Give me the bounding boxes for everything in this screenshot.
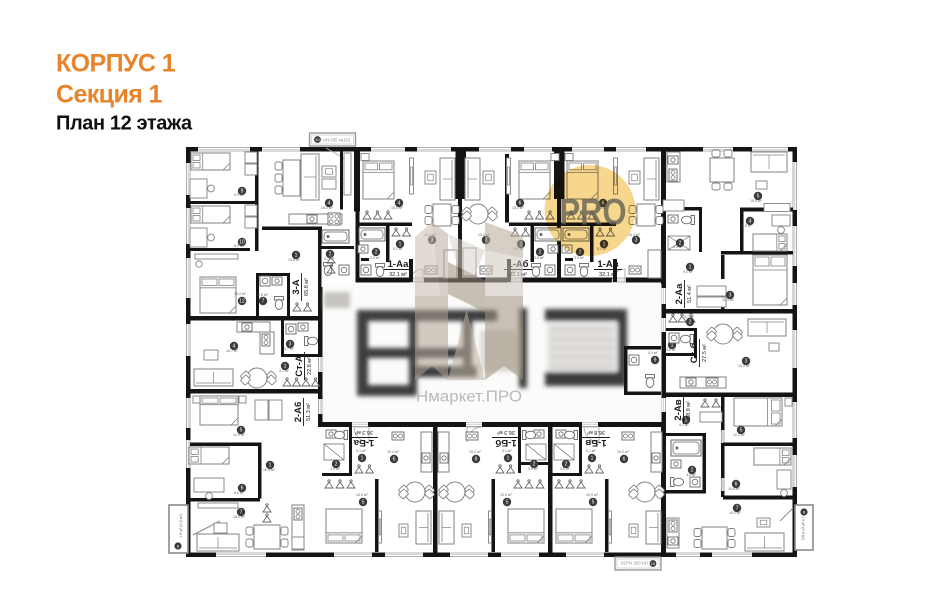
svg-text:2-Ав: 2-Ав [673, 399, 684, 420]
svg-text:19.0 м²: 19.0 м² [750, 199, 762, 203]
svg-text:32.1 м²: 32.1 м² [599, 272, 617, 278]
svg-text:3.9 м²: 3.9 м² [528, 467, 538, 471]
svg-text:Нмаркет.ПРО: Нмаркет.ПРО [416, 389, 522, 406]
svg-text:5.1 м²: 5.1 м² [356, 449, 366, 453]
svg-text:4.1 м²: 4.1 м² [648, 351, 658, 355]
svg-text:6: 6 [475, 457, 478, 463]
svg-text:1.5 м² (0.5 м²): 1.5 м² (0.5 м²) [179, 513, 183, 538]
svg-text:9.2 м²: 9.2 м² [683, 270, 693, 274]
svg-text:Секция 1: Секция 1 [56, 81, 163, 109]
svg-text:1: 1 [591, 456, 594, 462]
svg-text:КОРПУС 1: КОРПУС 1 [56, 50, 176, 78]
svg-text:36.8 м²: 36.8 м² [587, 429, 605, 435]
svg-text:36.3 м²: 36.3 м² [497, 429, 515, 435]
svg-text:12: 12 [239, 299, 245, 305]
svg-text:15.2 м²: 15.2 м² [234, 292, 246, 296]
svg-text:2: 2 [539, 250, 542, 256]
svg-text:5: 5 [592, 500, 595, 506]
svg-text:8.9 м²: 8.9 м² [742, 224, 752, 228]
svg-text:51.3 м²: 51.3 м² [306, 403, 312, 421]
svg-text:4.3 м²: 4.3 м² [686, 473, 696, 477]
svg-text:58.9 м²: 58.9 м² [686, 401, 692, 419]
svg-text:1-Ав: 1-Ав [597, 259, 618, 270]
svg-text:10.4 м²: 10.4 м² [263, 468, 275, 472]
svg-text:2: 2 [375, 250, 378, 256]
svg-text:15.1 м²: 15.1 м² [722, 298, 734, 302]
svg-text:2-А6: 2-А6 [293, 402, 304, 423]
svg-text:10: 10 [315, 137, 320, 142]
svg-text:10.8 м²: 10.8 м² [728, 487, 740, 491]
svg-text:16.2 м²: 16.2 м² [321, 206, 333, 210]
svg-text:3.9 м²: 3.9 м² [574, 256, 584, 260]
svg-text:15.2 м²: 15.2 м² [628, 233, 640, 237]
svg-text:36.3 м²: 36.3 м² [355, 429, 373, 435]
svg-text:10.9 м²: 10.9 м² [586, 493, 598, 497]
svg-text:9.2 м²: 9.2 м² [679, 423, 689, 427]
svg-text:10.9 м²: 10.9 м² [356, 493, 368, 497]
svg-text:51.4 м²: 51.4 м² [687, 285, 693, 303]
svg-text:19.2 м²: 19.2 м² [617, 450, 629, 454]
svg-text:План 12 этажа: План 12 этажа [56, 113, 193, 135]
svg-text:3.7 м²: 3.7 м² [684, 315, 694, 319]
svg-text:PRO: PRO [560, 192, 627, 233]
svg-text:65.8 м²: 65.8 м² [304, 278, 310, 296]
svg-text:3: 3 [635, 238, 638, 244]
svg-text:16.7 м²: 16.7 м² [226, 349, 238, 353]
svg-text:3.1 м²: 3.1 м² [279, 369, 289, 373]
svg-text:3-А: 3-А [291, 279, 302, 294]
svg-text:3.9 м²: 3.9 м² [560, 467, 570, 471]
svg-text:5: 5 [362, 500, 365, 506]
svg-text:9.9 м²: 9.9 м² [234, 193, 244, 197]
svg-text:6: 6 [623, 457, 626, 463]
svg-text:8.9 м²: 8.9 м² [234, 244, 244, 248]
svg-text:32.1 м²: 32.1 м² [389, 272, 407, 278]
svg-text:2.6 м²: 2.6 м² [258, 293, 268, 297]
svg-text:4.4 м²: 4.4 м² [673, 245, 683, 249]
svg-text:Ст-А: Ст-А [294, 355, 305, 377]
svg-text:1-Бв: 1-Бв [585, 437, 606, 448]
svg-text:10: 10 [651, 561, 656, 566]
svg-text:15.0 м²: 15.0 м² [512, 206, 524, 210]
svg-text:27.5 м²: 27.5 м² [702, 344, 708, 362]
svg-text:8.6 м²: 8.6 м² [234, 491, 244, 495]
svg-text:1: 1 [361, 456, 364, 462]
svg-text:5.1 м²: 5.1 м² [502, 449, 512, 453]
svg-text:7: 7 [262, 299, 265, 305]
svg-text:3.6 м²: 3.6 м² [534, 256, 544, 260]
svg-text:Ст-б: Ст-б [689, 343, 700, 364]
svg-text:22.8 м²: 22.8 м² [307, 357, 313, 375]
svg-text:15.0 м²: 15.0 м² [391, 206, 403, 210]
svg-text:14.9 м²: 14.9 м² [233, 433, 245, 437]
svg-text:18.1 м²: 18.1 м² [233, 515, 245, 519]
svg-text:1.5 м² (0.5 м²): 1.5 м² (0.5 м²) [801, 516, 805, 541]
svg-text:5.1 м²: 5.1 м² [586, 449, 596, 453]
svg-text:3.7 м²: 3.7 м² [284, 347, 294, 351]
svg-text:3.9 м²: 3.9 м² [370, 256, 380, 260]
svg-text:9: 9 [654, 358, 657, 364]
svg-text:2: 2 [689, 320, 692, 326]
svg-text:6: 6 [393, 457, 396, 463]
svg-text:12.2 м²: 12.2 м² [733, 433, 745, 437]
svg-text:UH-035 №153: UH-035 №153 [620, 561, 648, 566]
svg-text:19.2 м²: 19.2 м² [469, 450, 481, 454]
svg-text:5: 5 [506, 500, 509, 506]
svg-text:UH-035 №153: UH-035 №153 [323, 137, 351, 142]
svg-text:10.5 м²: 10.5 м² [288, 258, 300, 262]
svg-text:1-Бб: 1-Бб [495, 437, 516, 448]
svg-text:1-Ба: 1-Ба [353, 437, 374, 448]
svg-text:5.1 м²: 5.1 м² [393, 247, 403, 251]
svg-text:20.2 м²: 20.2 м² [738, 364, 750, 368]
svg-text:1: 1 [507, 456, 510, 462]
svg-text:2-Аа: 2-Аа [674, 283, 685, 304]
svg-text:19.2 м²: 19.2 м² [387, 450, 399, 454]
svg-text:10.9 м²: 10.9 м² [500, 493, 512, 497]
svg-text:1-Аа: 1-Аа [388, 259, 409, 270]
svg-text:3.8 м²: 3.8 м² [666, 348, 676, 352]
svg-text:3.9 м²: 3.9 м² [330, 467, 340, 471]
svg-text:19.1 м²: 19.1 м² [729, 511, 741, 515]
